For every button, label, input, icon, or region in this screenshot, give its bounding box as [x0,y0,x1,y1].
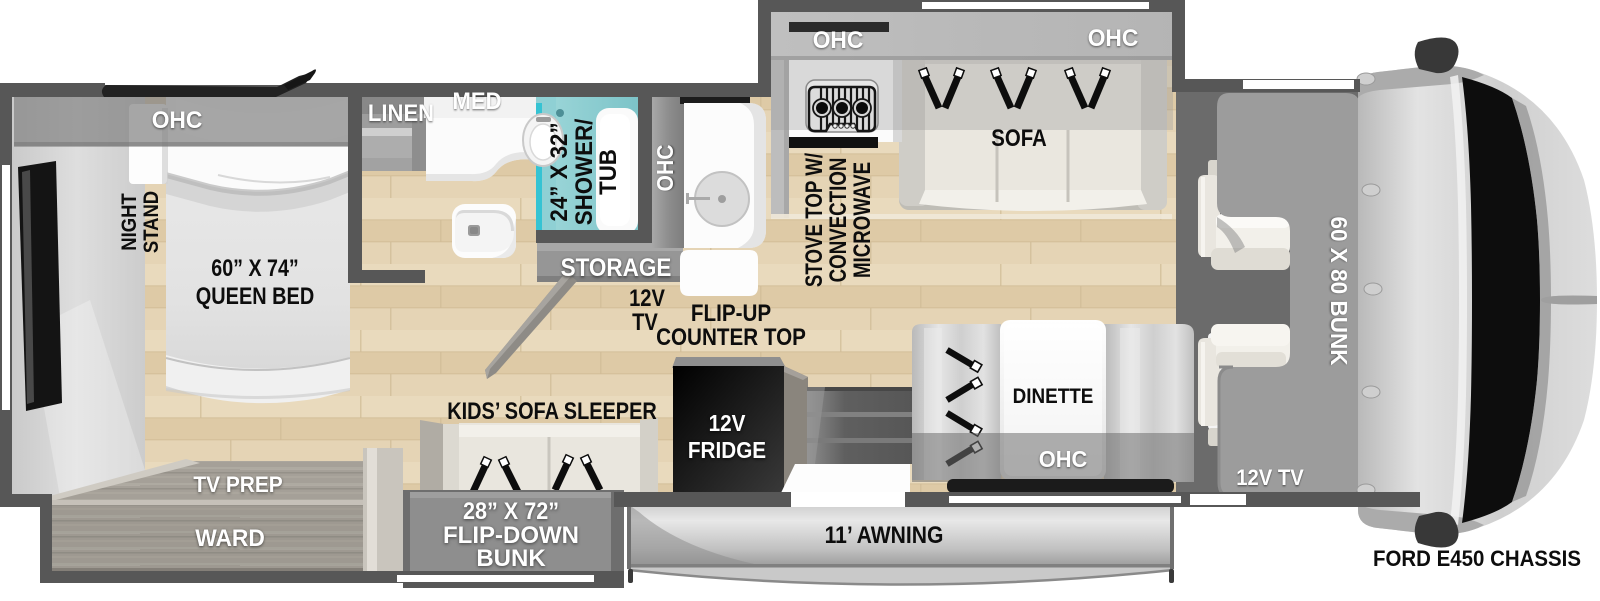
svg-text:OHC: OHC [1088,24,1139,51]
svg-text:TV: TV [632,308,658,335]
svg-text:LINEN: LINEN [368,99,434,126]
svg-text:STORAGE: STORAGE [561,254,672,282]
svg-text:SHOWER/: SHOWER/ [570,118,597,225]
svg-text:FORD E450 CHASSIS: FORD E450 CHASSIS [1373,546,1581,571]
svg-text:SOFA: SOFA [991,124,1047,151]
svg-text:STAND: STAND [140,191,163,253]
svg-text:DINETTE: DINETTE [1013,385,1094,408]
svg-text:WARD: WARD [195,524,265,551]
svg-text:KIDS’ SOFA SLEEPER: KIDS’ SOFA SLEEPER [447,397,657,424]
svg-text:FRIDGE: FRIDGE [688,437,766,463]
svg-text:28” X 72”: 28” X 72” [463,497,559,524]
svg-text:60 X 80 BUNK: 60 X 80 BUNK [1326,216,1352,366]
svg-text:CONVECTION: CONVECTION [825,158,852,283]
svg-text:12V TV: 12V TV [1236,466,1303,490]
svg-text:OHC: OHC [652,144,678,191]
svg-text:TUB: TUB [594,149,621,195]
svg-text:STOVE TOP W/: STOVE TOP W/ [801,153,828,287]
svg-text:OHC: OHC [813,26,864,53]
svg-text:FLIP-UP: FLIP-UP [691,300,771,327]
svg-text:24” X 32”: 24” X 32” [545,122,572,221]
svg-text:OHC: OHC [1039,446,1088,472]
svg-text:MED: MED [452,87,501,114]
svg-text:TV PREP: TV PREP [193,473,282,498]
svg-text:OHC: OHC [152,106,203,133]
svg-text:60” X 74”: 60” X 74” [211,254,298,281]
svg-text:BUNK: BUNK [476,545,546,572]
svg-text:COUNTER TOP: COUNTER TOP [656,324,806,351]
svg-text:QUEEN BED: QUEEN BED [196,282,314,309]
svg-text:NIGHT: NIGHT [118,193,141,250]
svg-text:MICROWAVE: MICROWAVE [849,162,876,278]
svg-text:11’ AWNING: 11’ AWNING [825,522,944,549]
svg-text:12V: 12V [709,410,746,436]
